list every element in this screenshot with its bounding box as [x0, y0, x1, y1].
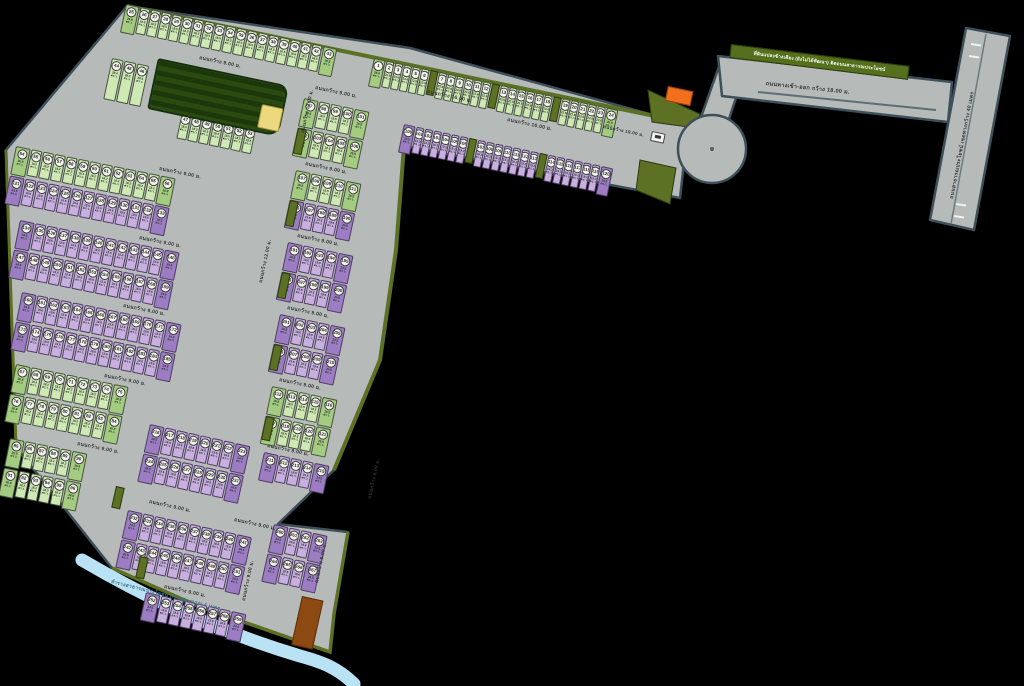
plot-area: 19.6ตร.ว. — [136, 359, 144, 367]
plot-area: 19.6ตร.ว. — [63, 273, 71, 281]
plot-area: 24.5ตร.ว. — [16, 335, 24, 343]
plot-area: 18.5ตร.ว. — [286, 402, 294, 410]
plot-area: 23.6ตร.ว. — [559, 111, 567, 119]
plot-area: 24.5ตร.ว. — [236, 457, 244, 465]
plot-area: 19.6ตร.ว. — [200, 540, 208, 548]
plot-area: 18.5ตร.ว. — [335, 149, 343, 157]
plot-area: 19.6ตร.ว. — [134, 287, 142, 295]
plot-area: 19.6ตร.ว. — [45, 239, 53, 247]
plot-area: 19.6ตร.ว. — [311, 365, 319, 373]
plot-area: 18.5ตร.ว. — [278, 50, 286, 58]
plot-area: 19.6ตร.ว. — [163, 441, 171, 449]
plot-area: 18.5ตร.ว. — [303, 437, 311, 445]
plot-area: 26.8ตร.ว. — [125, 17, 133, 25]
plot-area: 18.5ตร.ว. — [299, 54, 307, 62]
plot-area: 26.8ตร.ว. — [296, 184, 304, 192]
plot-area: 19.6ตร.ว. — [104, 251, 112, 259]
plot-area: 24.5ตร.ว. — [230, 577, 238, 585]
plot-area: 18.5ตร.ว. — [310, 186, 318, 194]
plot-area: 19.6ตร.ว. — [159, 609, 167, 617]
plot-area: 19.6ตร.ว. — [95, 320, 103, 328]
plot-area: 18.2ตร.ว. — [29, 486, 37, 494]
plot-area: 19.6ตร.ว. — [116, 253, 124, 261]
plot-area: 18.5ตร.ว. — [318, 114, 326, 122]
plot-area: 18.5ตร.ว. — [246, 43, 254, 51]
plot-area: 19.6ตร.ว. — [289, 471, 297, 479]
plot-area: 18.2ตร.ว. — [83, 422, 91, 430]
plot-area: 18.2ตร.ว. — [65, 388, 73, 396]
plot-area: 19.6ตร.ว. — [157, 470, 165, 478]
plot-area: 26.8ตร.ว. — [73, 464, 81, 472]
plot-area: 18.5ตร.ว. — [160, 25, 168, 33]
plot-area: 19.6ตร.ว. — [118, 325, 126, 333]
plot-area: 19.6ตร.ว. — [140, 258, 148, 266]
plot-area: 19.2ตร.ว. — [528, 164, 536, 172]
plot-area: 24.5ตร.ว. — [155, 218, 163, 226]
plot-area: 19.6ตร.ว. — [188, 537, 196, 545]
plot-area: 23.6ตร.ว. — [577, 115, 585, 123]
plot-area: 19.6ตร.ว. — [47, 311, 55, 319]
plot-area: 23.6ตร.ว. — [401, 77, 409, 85]
plot-area: 19.6ตร.ว. — [106, 208, 114, 216]
plot-area: 18.2ตร.ว. — [100, 395, 108, 403]
plot-area: 26.8ตร.ว. — [161, 189, 169, 197]
plot-area: 19.6ตร.ว. — [98, 280, 106, 288]
plot-area: 19.6ตร.ว. — [124, 357, 132, 365]
plot-area: 23.6ตร.ว. — [524, 103, 532, 111]
plot-area: 24.5ตร.ว. — [324, 368, 332, 376]
plot-area: 23.6ตร.ว. — [594, 118, 602, 126]
plot-area: 19.6ตร.ว. — [59, 313, 67, 321]
plot-area: 19.2ตร.ว. — [422, 141, 430, 149]
plot-area: 19.2ตร.ว. — [484, 155, 492, 163]
plot-area: 24.5ตร.ว. — [150, 438, 158, 446]
plot-area: 23.6ตร.ว. — [410, 79, 418, 87]
plot-area: 18.5ตร.ว. — [233, 136, 241, 144]
plot-area: 18.2ตร.ว. — [47, 415, 55, 423]
plot-area: 19.6ตร.ว. — [35, 194, 43, 202]
plot-area: 18.2ตร.ว. — [41, 489, 49, 497]
plot-area: 19.6ตร.ว. — [100, 352, 108, 360]
plot-area: 26.8ตร.ว. — [16, 378, 24, 386]
plot-area: 18.5ตร.ว. — [190, 127, 198, 135]
plot-area: 24.5ตร.ว. — [22, 306, 30, 314]
plot-area: 24.5ตร.ว. — [288, 256, 296, 264]
plot-area: 18.5ตร.ว. — [333, 191, 341, 199]
plot-area: 19.6ตร.ว. — [89, 350, 97, 358]
plot-area: 18.5ตร.ว. — [213, 36, 221, 44]
plot-area: 18.5ตร.ว. — [310, 57, 318, 65]
plot-area: 19.6ตร.ว. — [75, 275, 83, 283]
plot-area: 19.6ตร.ว. — [315, 218, 323, 226]
plot-area: 24.5ตร.ว. — [402, 137, 410, 145]
plot-area: 19.6ตร.ว. — [53, 343, 61, 351]
plot-area: 19.6ตร.ว. — [325, 263, 333, 271]
plot-area: 18.2ตร.ว. — [124, 181, 132, 189]
plot-area: 18.2ตร.ว. — [53, 167, 61, 175]
plot-area: 18.2ตร.ว. — [30, 162, 38, 170]
plot-area: 18.2ตร.ว. — [24, 410, 32, 418]
plot-area: 24.5ตร.ว. — [331, 338, 339, 346]
plot-area: 24.5ตร.ว. — [339, 266, 347, 274]
plot-area: 24.5ตร.ว. — [14, 263, 22, 271]
plot-area: 18.5ตร.ว. — [181, 29, 189, 37]
plot-area: 18.5ตร.ว. — [311, 144, 319, 152]
plot-area: 19.6ตร.ว. — [194, 616, 202, 624]
plot-area: 28.4ตร.ว. — [110, 71, 118, 79]
plot-area: 19.6ตร.ว. — [294, 330, 302, 338]
plot-area: 18.2ตร.ว. — [89, 392, 97, 400]
plot-area: 19.6ตร.ว. — [287, 541, 295, 549]
plot-area: 19.6ตร.ว. — [217, 574, 225, 582]
plot-area: 18.5ตร.ว. — [323, 146, 331, 154]
plot-area: 19.6ตร.ว. — [34, 236, 42, 244]
plot-area: 19.2ตร.ว. — [448, 147, 456, 155]
plot-area: 19.6ตร.ว. — [93, 248, 101, 256]
plot-area: 19.6ตร.ว. — [299, 543, 307, 551]
plot-area: 19.6ตร.ว. — [87, 278, 95, 286]
plot-area: 19.6ตร.ว. — [305, 333, 313, 341]
plot-area: 28.4ตร.ว. — [136, 77, 144, 85]
plot-area: 19.6ตร.ว. — [30, 338, 38, 346]
plot-area: 19.6ตร.ว. — [122, 285, 130, 293]
plot-area: 23.6ตร.ว. — [418, 81, 426, 89]
plot-area: 19.6ตร.ว. — [319, 293, 327, 301]
plot-area: 23.6ตร.ว. — [480, 94, 488, 102]
plot-area: 18.5ตร.ว. — [321, 189, 329, 197]
plot-area: 26.8ตร.ว. — [10, 452, 18, 460]
plot-area: 19.6ตร.ว. — [293, 572, 301, 580]
plot-area: 19.2ตร.ว. — [510, 160, 518, 168]
plot-area: 24.5ตร.ว. — [161, 364, 169, 372]
plot-area: 19.6ตร.ว. — [307, 290, 315, 298]
plot-area: 18.5ตร.ว. — [235, 41, 243, 49]
plot-area: 24.5ตร.ว. — [128, 524, 136, 532]
plot-area: 19.6ตร.ว. — [169, 472, 177, 480]
plot-area: 23.6ตร.ว. — [515, 102, 523, 110]
plot-area: 19.6ตร.ว. — [302, 258, 310, 266]
plot-area: 19.6ตร.ว. — [303, 216, 311, 224]
plot-area: 19.2ตร.ว. — [492, 156, 500, 164]
plot-area: 18.5ตร.ว. — [179, 125, 187, 133]
plot-area: 24.5ตร.ว. — [165, 263, 173, 271]
plot-area: 19.6ตร.ว. — [313, 261, 321, 269]
plot-area: 19.6ตร.ว. — [223, 545, 231, 553]
plot-area: 24.5ตร.ว. — [159, 292, 167, 300]
plot-area: 19.6ตร.ว. — [71, 316, 79, 324]
plot-area: 19.6ตร.ว. — [198, 448, 206, 456]
plot-area: 24.5ตร.ว. — [10, 189, 18, 197]
plot-area: 19.2ตร.ว. — [440, 145, 448, 153]
plot-area: 19.6ตร.ว. — [301, 473, 309, 481]
plot-area: 19.6ตร.ว. — [130, 327, 138, 335]
plot-area: 19.6ตร.ว. — [204, 480, 212, 488]
plot-area: 18.2ตร.ว. — [65, 170, 73, 178]
plot-area: 19.6ตร.ว. — [147, 362, 155, 370]
plot-area: 18.2ตร.ว. — [112, 179, 120, 187]
plot-area: 18.2ตร.ว. — [136, 184, 144, 192]
plot-area: 19.6ตร.ว. — [39, 268, 47, 276]
plot-area: 24.5ตร.ว. — [167, 335, 175, 343]
plot-area: 18.2ตร.ว. — [89, 174, 97, 182]
plot-area: 18.5ตร.ว. — [170, 27, 178, 35]
plot-area: 19.6ตร.ว. — [77, 347, 85, 355]
plot-area: 19.6ตร.ว. — [205, 571, 213, 579]
plot-area: 24.5ตร.ว. — [143, 467, 151, 475]
plot-area: 18.5ตร.ว. — [256, 45, 264, 53]
plot-area: 18.2ตร.ว. — [147, 186, 155, 194]
plot-area: 18.2ตร.ว. — [59, 462, 67, 470]
plot-area: 18.5ตร.ว. — [291, 434, 299, 442]
plot-area: 19.6ตร.ว. — [41, 340, 49, 348]
plot-area: 19.6ตร.ว. — [83, 204, 91, 212]
plot-area: 26.8ตร.ว. — [67, 494, 75, 502]
plot-area: 19.6ตร.ว. — [69, 244, 77, 252]
plot-area: 24.5ตร.ว. — [264, 466, 272, 474]
plot-area: 26.8ตร.ว. — [114, 397, 122, 405]
plot-area: 19.6ตร.ว. — [28, 266, 36, 274]
plot-area: 19.6ตร.ว. — [215, 483, 223, 491]
plot-area: 18.5ตร.ว. — [192, 32, 200, 40]
plot-area: 19.2ตร.ว. — [519, 162, 527, 170]
plot-area: 19.6ตร.ว. — [47, 197, 55, 205]
plot-area: 19.6ตร.ว. — [130, 213, 138, 221]
plot-area: 18.2ตร.ว. — [41, 383, 49, 391]
plot-area: 26.8ตร.ว. — [10, 407, 18, 415]
plot-area: 18.5ตร.ว. — [341, 119, 349, 127]
plot-area: 19.6ตร.ว. — [110, 282, 118, 290]
plot-area: 19.6ตร.ว. — [170, 564, 178, 572]
plot-area: 18.2ตร.ว. — [24, 454, 32, 462]
plot-area: 18.5ตร.ว. — [329, 117, 337, 125]
plot-area: 19.2ตร.ว. — [431, 143, 439, 151]
plot-area: 23.6ตร.ว. — [383, 74, 391, 82]
plot-area: 19.6ตร.ว. — [81, 246, 89, 254]
plot-area: 18.2ตร.ว. — [35, 457, 43, 465]
plot-area: 18.2ตร.ว. — [53, 491, 61, 499]
plot-area: 24.5ตร.ว. — [600, 179, 608, 187]
plot-area: 19.6ตร.ว. — [153, 529, 161, 537]
plot-area: 19.6ตร.ว. — [193, 569, 201, 577]
plot-area: 18.2ตร.ว. — [77, 172, 85, 180]
plot-area: 19.6ตร.ว. — [218, 622, 226, 630]
plot-area: 18.5ตร.ว. — [201, 130, 209, 138]
plot-area: 26.8ตร.ว. — [348, 152, 356, 160]
plot-area: 19.6ตร.ว. — [327, 221, 335, 229]
plot-area: 23.6ตร.ว. — [498, 98, 506, 106]
roundabout-center — [710, 147, 714, 151]
plot-area: 18.2ตร.ว. — [77, 390, 85, 398]
plot-area: 23.6ตร.ว. — [568, 113, 576, 121]
plot-area: 18.5ตร.ว. — [222, 134, 230, 142]
plot-area: 26.8ตร.ว. — [272, 400, 280, 408]
plot-area: 24.5ตร.ว. — [267, 567, 275, 575]
plot-area: 24.5ตร.ว. — [20, 234, 28, 242]
plot-area: 18.2ตร.ว. — [71, 419, 79, 427]
plot-area: 19.6ตร.ว. — [287, 360, 295, 368]
plot-area: 19.6ตร.ว. — [176, 534, 184, 542]
plot-area: 19.6ตร.ว. — [71, 201, 79, 209]
plot-area: 19.6ตร.ว. — [118, 211, 126, 219]
plot-area: 24.5ตร.ว. — [237, 548, 245, 556]
plot-area: 19.2ตร.ว. — [572, 173, 580, 181]
plot-area: 19.6ตร.ว. — [158, 561, 166, 569]
plot-area: 18.5ตร.ว. — [267, 48, 275, 56]
plot-area: 19.6ตร.ว. — [106, 323, 114, 331]
plot-area: 26.8ตร.ว. — [108, 427, 116, 435]
plot-area: 19.2ตร.ว. — [501, 158, 509, 166]
plot-area: 18.2ตร.ว. — [18, 484, 26, 492]
plot-area: 19.2ตร.ว. — [413, 140, 421, 148]
plot-area: 24.5ตร.ว. — [229, 486, 237, 494]
plot-area: 19.6ตร.ว. — [83, 318, 91, 326]
plot-area: 19.6ตร.ว. — [51, 271, 59, 279]
plot-area: 19.6ตร.ว. — [153, 332, 161, 340]
plot-area: 19.6ตร.ว. — [187, 446, 195, 454]
plot-area: 18.2ตร.ว. — [41, 165, 49, 173]
plot-area: 26.8ตร.ว. — [347, 194, 355, 202]
plot-area: 19.6ตร.ว. — [151, 260, 159, 268]
plot-area: 26.8ตร.ว. — [372, 71, 380, 79]
plot-area: 19.6ตร.ว. — [145, 290, 153, 298]
plot-area: 19.2ตร.ว. — [457, 149, 465, 157]
plot-area: 19.6ตร.ว. — [94, 206, 102, 214]
plot-area: 19.6ตร.ว. — [128, 255, 136, 263]
plot-area: 18.5ตร.ว. — [244, 139, 252, 147]
plot-area: 18.2ตร.ว. — [47, 459, 55, 467]
plot-area: 26.8ตร.ว. — [355, 122, 363, 130]
plot-area: 19.2ตร.ว. — [554, 169, 562, 177]
plot-area: 26.8ตร.ว. — [16, 160, 24, 168]
plot-area: 28.4ตร.ว. — [123, 74, 131, 82]
plot-area: 19.6ตร.ว. — [222, 454, 230, 462]
plot-area: 19.6ตร.ว. — [165, 532, 173, 540]
plot-area: 18.5ตร.ว. — [289, 52, 297, 60]
plot-area: 19.6ตร.ว. — [281, 570, 289, 578]
plot-area: 19.6ตร.ว. — [192, 478, 200, 486]
plot-area: 19.6ตร.ว. — [183, 614, 191, 622]
plot-area: 18.2ตร.ว. — [100, 177, 108, 185]
plot-area: 19.6ตร.ว. — [57, 241, 65, 249]
gate-green-wedge-bottom — [636, 160, 676, 204]
plot-area: 24.5ตร.ว. — [280, 328, 288, 336]
plot-area: 24.5ตร.ว. — [146, 606, 154, 614]
plot-area: 19.2ตร.ว. — [475, 153, 483, 161]
main-public-road — [930, 28, 1010, 230]
plot-area: 19.6ตร.ว. — [65, 345, 73, 353]
plot-area: 19.6ตร.ว. — [171, 611, 179, 619]
plot-area: 23.6ตร.ว. — [533, 105, 541, 113]
plot-area: 19.2ตร.ว. — [545, 168, 553, 176]
plot-area: 18.5ตร.ว. — [149, 22, 157, 30]
plot-area: 18.2ตร.ว. — [59, 417, 67, 425]
plot-area: 18.5ตร.ว. — [224, 38, 232, 46]
plot-area: 19.6ตร.ว. — [112, 354, 120, 362]
plot-area: 26.8ตร.ว. — [323, 59, 331, 67]
plot-area: 19.2ตร.ว. — [589, 177, 597, 185]
plot-area: 18.2ตร.ว. — [53, 385, 61, 393]
plot-area: 19.6ตร.ว. — [141, 216, 149, 224]
plot-area: 18.5ตร.ว. — [279, 432, 287, 440]
plot-area: 18.5ตร.ว. — [212, 132, 220, 140]
plot-area: 18.5ตร.ว. — [138, 20, 146, 28]
plot-area: 19.6ตร.ว. — [175, 443, 183, 451]
plot-area: 19.6ตร.ว. — [295, 288, 303, 296]
plot-area: 18.5ตร.ว. — [203, 34, 211, 42]
plot-area: 19.6ตร.ว. — [24, 192, 32, 200]
plot-area: 18.5ตร.ว. — [309, 407, 317, 415]
plot-area: 18.2ตร.ว. — [94, 424, 102, 432]
plot-area: 19.2ตร.ว. — [580, 175, 588, 183]
plot-area: 24.5ตร.ว. — [121, 553, 129, 561]
plot-area: 19.6ตร.ว. — [180, 475, 188, 483]
plot-area: 24.5ตร.ว. — [274, 538, 282, 546]
plot-area: 24.5ตร.ว. — [232, 625, 240, 633]
plot-area: 19.6ตร.ว. — [317, 335, 325, 343]
plot-area: 19.6ตร.ว. — [299, 362, 307, 370]
plot-area: 19.6ตร.ว. — [142, 330, 150, 338]
plot-area: 26.8ตร.ว. — [316, 440, 324, 448]
plot-area: 19.6ตร.ว. — [36, 308, 44, 316]
site-plan: 126.8ตร.ว.223.6ตร.ว.323.6ตร.ว.423.6ตร.ว.… — [0, 0, 1024, 686]
plot-area: 23.6ตร.ว. — [506, 100, 514, 108]
plot-area: 24.5ตร.ว. — [340, 224, 348, 232]
plot-area: 18.2ตร.ว. — [35, 412, 43, 420]
plot-area: 24.5ตร.ว. — [315, 476, 323, 484]
plot-area: 19.6ตร.ว. — [278, 468, 286, 476]
plot-area: 24.5ตร.ว. — [332, 296, 340, 304]
plot-area: 26.8ตร.ว. — [323, 410, 331, 418]
plot-area: 19.6ตร.ว. — [141, 527, 149, 535]
plot-area: 19.6ตร.ว. — [210, 451, 218, 459]
plot-area: 19.2ตร.ว. — [563, 171, 571, 179]
plot-area: 19.6ตร.ว. — [206, 619, 214, 627]
plot-area: 18.2ตร.ว. — [30, 380, 38, 388]
plot-area: 18.5ตร.ว. — [297, 405, 305, 413]
plot-area: 23.6ตร.ว. — [586, 117, 594, 125]
plot-area: 19.6ตร.ว. — [212, 542, 220, 550]
plot-area: 23.6ตร.ว. — [392, 75, 400, 83]
plot-area: 23.6ตร.ว. — [542, 107, 550, 115]
plot-area: 19.6ตร.ว. — [182, 566, 190, 574]
plot-area: 26.8ตร.ว. — [4, 481, 12, 489]
plot-area: 19.6ตร.ว. — [59, 199, 67, 207]
